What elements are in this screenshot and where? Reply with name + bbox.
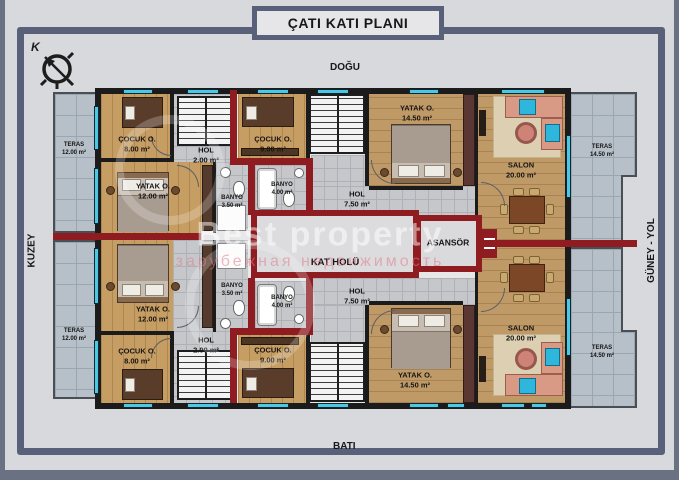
terrace-bottom-left	[53, 240, 97, 399]
label-bath-tl: BANYO3.50 m²	[221, 195, 243, 211]
label-salon-br: SALON20.00 m²	[506, 323, 536, 343]
child-bed	[242, 368, 294, 398]
compass-letter: K	[31, 40, 41, 54]
window	[447, 403, 465, 408]
red-wall	[230, 90, 237, 162]
window	[123, 403, 153, 408]
window	[123, 89, 153, 94]
wall	[306, 94, 310, 158]
red-wall	[230, 158, 313, 165]
wardrobe	[463, 94, 475, 186]
window	[531, 403, 547, 408]
chair	[500, 272, 508, 283]
sofa-cushion	[545, 348, 560, 366]
label-bedroom-br: YATAK O.14.50 m²	[398, 370, 432, 390]
bed	[391, 124, 451, 184]
direction-south-road: GÜNEY - YOL	[646, 218, 657, 283]
window	[317, 89, 349, 94]
sofa-cushion	[545, 124, 560, 142]
chair	[546, 272, 554, 283]
wall	[365, 305, 369, 403]
chair	[529, 294, 540, 302]
bed	[391, 308, 451, 368]
direction-north: KUZEY	[26, 234, 37, 268]
bed	[117, 244, 169, 303]
window	[501, 403, 525, 408]
terrace-bottom-right-b	[569, 247, 623, 332]
window	[94, 248, 99, 304]
label-terrace-bl: TERAS12.00 m²	[62, 328, 86, 344]
label-hall-tm: HOL7.50 m²	[344, 189, 370, 209]
direction-west: BATI	[333, 441, 356, 452]
shaft-line	[484, 238, 495, 240]
label-hall-bm: HOL7.50 m²	[344, 286, 370, 306]
chair	[546, 204, 554, 215]
terrace-top-right-b	[569, 175, 623, 243]
label-terrace-tr: TERAS14.50 m²	[590, 144, 614, 160]
chair	[529, 226, 540, 234]
dining-table	[509, 264, 545, 292]
wardrobe	[463, 305, 475, 403]
nightstand	[453, 325, 462, 334]
label-child-bl: ÇOCUK O.8.00 m²	[118, 346, 156, 366]
dining-table	[509, 196, 545, 224]
wall	[306, 335, 310, 403]
window	[317, 403, 349, 408]
wall	[365, 94, 369, 186]
tv-unit	[479, 356, 486, 382]
compass-icon: K	[23, 33, 85, 95]
child-bed	[242, 97, 294, 127]
chair	[513, 294, 524, 302]
wall	[101, 331, 174, 335]
red-wall	[475, 240, 637, 247]
label-bedroom-tr: YATAK O.14.50 m²	[400, 103, 434, 123]
coffee-table	[515, 348, 537, 370]
chair	[513, 226, 524, 234]
terrace-bottom-right-a	[569, 330, 637, 408]
watermark-ring	[185, 240, 315, 370]
nightstand	[171, 282, 180, 291]
window	[94, 168, 99, 224]
direction-east: DOĞU	[330, 62, 360, 73]
label-bedroom-bl: YATAK O.12.00 m²	[136, 304, 170, 324]
child-bed	[122, 369, 163, 400]
sofa-cushion	[519, 99, 536, 115]
window	[566, 135, 571, 198]
corridor-top-middle	[311, 155, 367, 188]
window	[409, 89, 439, 94]
nightstand	[106, 282, 115, 291]
window	[187, 89, 219, 94]
stairs-bottom-middle	[309, 342, 365, 402]
label-floor-hall: KAT HOLÜ	[311, 257, 359, 269]
sink	[294, 168, 304, 178]
terrace-top-right-a	[569, 92, 637, 177]
shaft-line	[484, 247, 495, 249]
watermark-ring	[115, 115, 225, 225]
coffee-table	[515, 122, 537, 144]
label-bath-tm: BANYO4.00 m²	[271, 182, 293, 198]
window	[409, 403, 439, 408]
chair	[529, 188, 540, 196]
label-terrace-br: TERAS14.50 m²	[590, 345, 614, 361]
window	[94, 106, 99, 150]
wall	[369, 301, 463, 305]
window	[501, 89, 545, 94]
chair	[529, 256, 540, 264]
window	[257, 403, 289, 408]
window	[187, 403, 219, 408]
window	[257, 89, 289, 94]
label-salon-tr: SALON20.00 m²	[506, 160, 536, 180]
label-child-tm: ÇOCUK O.9.00 m²	[254, 134, 292, 154]
label-elevator: ASANSÖR	[427, 237, 470, 248]
red-wall	[53, 233, 201, 240]
corridor-bottom-middle	[311, 305, 367, 342]
chair	[513, 256, 524, 264]
terrace-top-left	[53, 92, 97, 233]
chair	[513, 188, 524, 196]
window	[94, 340, 99, 394]
plan-title: ÇATI KATI PLANI	[252, 6, 444, 40]
stairs-top-middle	[309, 94, 365, 154]
red-wall	[306, 165, 313, 215]
floor-plan-page: ÇATI KATI PLANI DOĞU BATI KUZEY GÜNEY - …	[0, 0, 679, 480]
red-wall	[248, 162, 255, 215]
label-terrace-tl: TERAS12.00 m²	[62, 142, 86, 158]
sofa-cushion	[519, 378, 536, 394]
wall	[369, 186, 463, 190]
nightstand	[453, 168, 462, 177]
window	[566, 298, 571, 356]
tv-unit	[479, 110, 486, 136]
nightstand	[106, 186, 115, 195]
